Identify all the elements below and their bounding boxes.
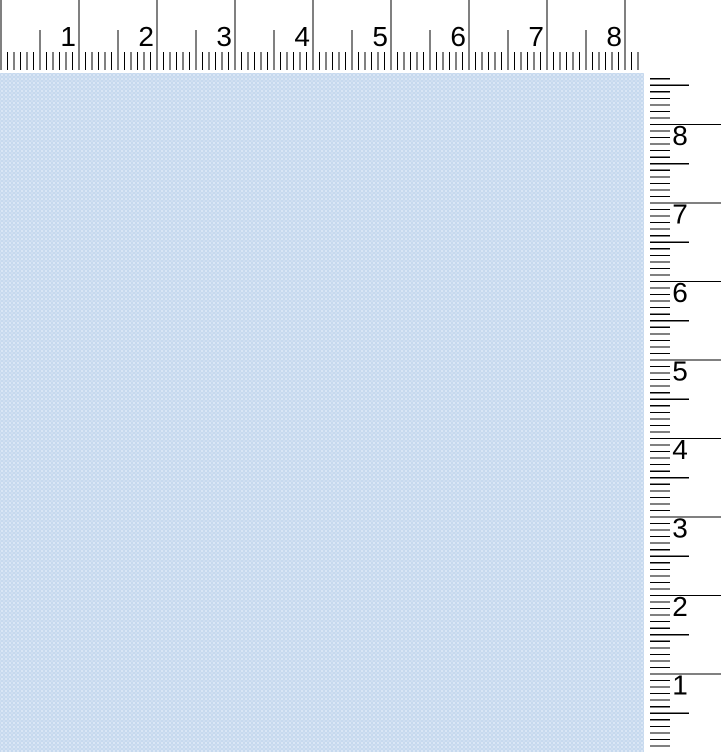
ruler-corner <box>644 0 721 73</box>
horizontal-ruler-ticks: 12345678 <box>0 0 644 73</box>
ruler-label: 4 <box>672 434 688 465</box>
screen: { "app": { "description": "Ruler measure… <box>0 0 721 752</box>
ruler-label: 5 <box>672 356 688 387</box>
ruler-label: 1 <box>60 21 76 52</box>
ruler-label: 2 <box>672 591 688 622</box>
vertical-ruler-ticks: 87654321 <box>644 73 721 752</box>
ruler-label: 8 <box>606 21 622 52</box>
ruler-label: 3 <box>672 513 688 544</box>
ruler-label: 4 <box>294 21 310 52</box>
horizontal-ruler: 12345678 <box>0 0 644 73</box>
document-canvas[interactable] <box>0 73 644 752</box>
app-window: 12345678 87654321 <box>0 0 721 752</box>
ruler-label: 2 <box>138 21 154 52</box>
ruler-label: 6 <box>450 21 466 52</box>
ruler-label: 8 <box>672 120 688 151</box>
ruler-label: 6 <box>672 277 688 308</box>
ruler-label: 7 <box>672 199 688 230</box>
vertical-ruler: 87654321 <box>644 73 721 752</box>
ruler-label: 3 <box>216 21 232 52</box>
ruler-label: 1 <box>672 670 688 701</box>
ruler-label: 5 <box>372 21 388 52</box>
ruler-label: 7 <box>528 21 544 52</box>
